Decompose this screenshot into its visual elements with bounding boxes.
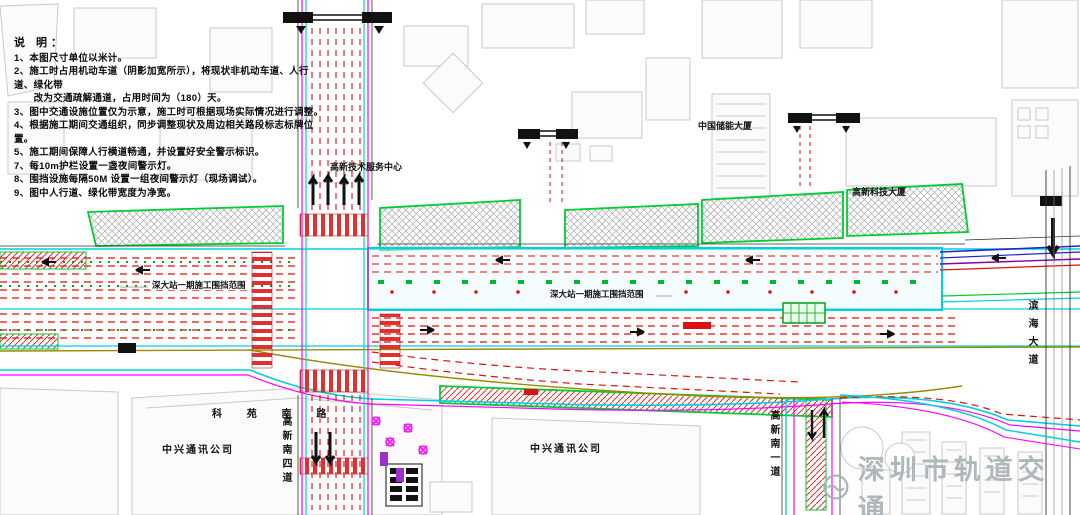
enclosure-label-center: 深大站一期施工围挡范围 — [548, 290, 646, 299]
note-item: 1、本图尺寸单位以米计。 — [14, 52, 326, 65]
road-label-gaoxin1: 高新南一道 — [768, 410, 778, 480]
note-item: 8、围挡设施每隔50M 设置一组夜间警示灯（现场调试）。 — [14, 173, 326, 186]
note-item: 4、根据施工期间交通组织，同步调整现状及周边相关路段标志标牌位置。 — [14, 119, 326, 146]
utility-trunk-lines — [940, 246, 1080, 302]
building-label-keji: 高新科技大厦 — [852, 188, 906, 197]
road-label-keyuan: 科 苑 南 路 — [212, 410, 337, 420]
enclosure-label-left: 深大站一期施工围挡范围 — [150, 281, 248, 290]
road-label-binhai: 滨海大道 — [1026, 300, 1036, 372]
green-guide-lines-west — [0, 262, 295, 330]
road-label-gaoxin4: 高新南四道 — [280, 416, 290, 486]
note-item: 2、施工时占用机动车道（阴影加宽所示），将现状非机动车道、人行道、绿化带 — [14, 65, 326, 92]
note-item: 3、图中交通设施位置仅为示意，施工时可根据现场实际情况进行调整。 — [14, 106, 326, 119]
watermark: 深圳市轨道交通 — [822, 448, 1080, 515]
note-item: 5、施工期间保障人行横道畅通，并设置好安全警示标识。 — [14, 146, 326, 159]
company-label-center: 中兴通讯公司 — [530, 445, 602, 455]
note-item: 改为交通疏解通道，占用时间为（180）天。 — [14, 92, 326, 105]
company-label-left: 中兴通讯公司 — [162, 446, 234, 456]
note-item: 9、图中人行道、绿化带宽度为净宽。 — [14, 187, 326, 200]
notes-block: 说 明： 1、本图尺寸单位以米计。 2、施工时占用机动车道（阴影加宽所示），将现… — [14, 34, 326, 200]
notes-title: 说 明： — [14, 34, 326, 50]
watermark-text: 深圳市轨道交通 — [858, 448, 1080, 515]
szmc-logo-icon — [822, 473, 850, 501]
station-enclosure — [368, 248, 942, 310]
building-label-service-center: 高新技术服务中心 — [330, 163, 402, 172]
traffic-plan-canvas: 说 明： 1、本图尺寸单位以米计。 2、施工时占用机动车道（阴影加宽所示），将现… — [0, 0, 1080, 515]
note-item: 7、每10m护栏设置一盏夜间警示灯。 — [14, 160, 326, 173]
building-label-chuneng: 中国储能大厦 — [698, 122, 752, 131]
